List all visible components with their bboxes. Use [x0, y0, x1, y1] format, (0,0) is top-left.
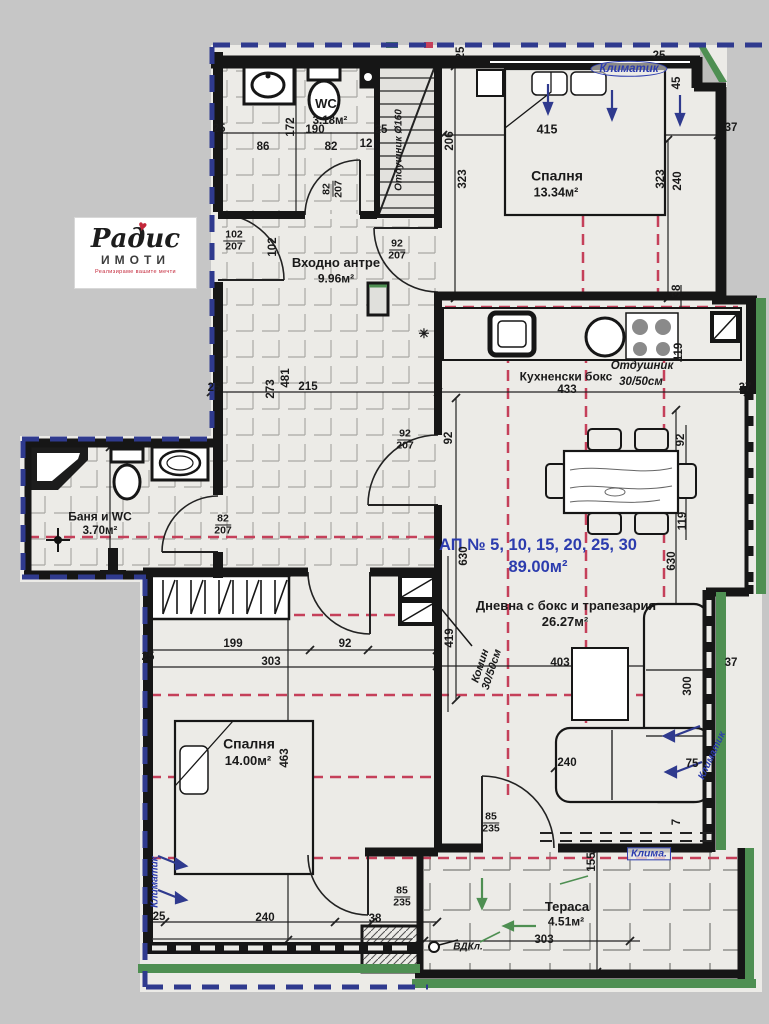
agency-logo-brand: Радис [75, 226, 196, 252]
bathroom-sink [160, 451, 200, 475]
burner [632, 319, 648, 335]
wc-toilet [309, 81, 339, 119]
coffee-table [572, 648, 628, 720]
sofa-seat [556, 728, 710, 802]
floor-plan-page: Радис ♥ ИМОТИ Реализираме вашите мечти W… [0, 0, 769, 1024]
agency-logo-tagline: Реализираме вашите мечти [75, 269, 196, 275]
dining-table [564, 451, 678, 513]
dining-chair [635, 429, 668, 450]
dining-chair [588, 429, 621, 450]
hall-duct [368, 283, 388, 315]
burner [655, 319, 671, 335]
floor-plan-drawing [0, 0, 769, 1024]
burner [633, 342, 647, 356]
bathroom-toilet-tank [111, 449, 143, 462]
kitchen-basin [586, 318, 624, 356]
burner [656, 342, 670, 356]
dining-chair [588, 513, 621, 534]
vent-shaft [377, 64, 437, 216]
bed-1-pillow-left [532, 72, 567, 95]
nightstand-1 [477, 70, 503, 96]
agency-logo: Радис ♥ ИМОТИ Реализираме вашите мечти [75, 218, 196, 288]
bed-1-pillow-right [571, 72, 606, 95]
drain-symbol [429, 942, 439, 952]
dining-chair [635, 513, 668, 534]
bed-2 [175, 721, 313, 874]
agency-logo-imoti: ИМОТИ [75, 253, 196, 267]
bathroom-toilet [114, 465, 140, 499]
